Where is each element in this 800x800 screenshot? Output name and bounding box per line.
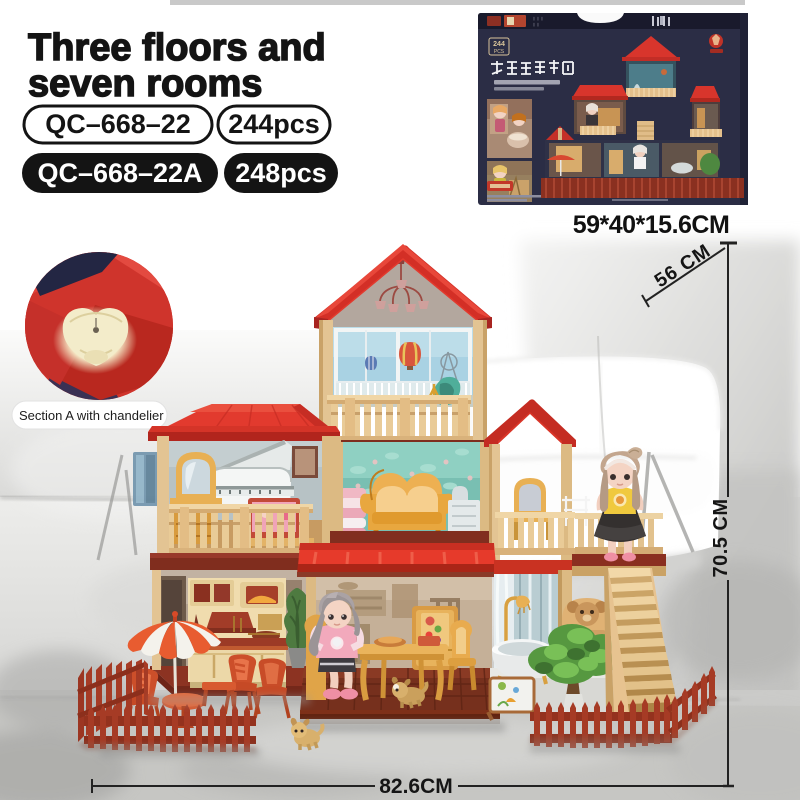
svg-text:PCS: PCS [494,49,505,55]
svg-text:70.5 CM: 70.5 CM [710,498,732,577]
svg-text:82.6CM: 82.6CM [379,775,453,798]
svg-text:59*40*15.6CM: 59*40*15.6CM [573,211,730,239]
svg-text:244pcs: 244pcs [228,109,320,139]
svg-text:QC–668–22: QC–668–22 [45,109,191,139]
svg-text:丨丨丨: 丨丨丨 [532,16,544,21]
svg-text:丨丨: 丨丨 [532,22,540,27]
svg-text:seven rooms: seven rooms [28,63,262,105]
svg-text:QC–668–22A: QC–668–22A [37,158,202,188]
svg-text:244: 244 [493,41,505,48]
svg-text:248pcs: 248pcs [235,158,327,188]
svg-text:Section A with chandelier: Section A with chandelier [19,408,164,423]
